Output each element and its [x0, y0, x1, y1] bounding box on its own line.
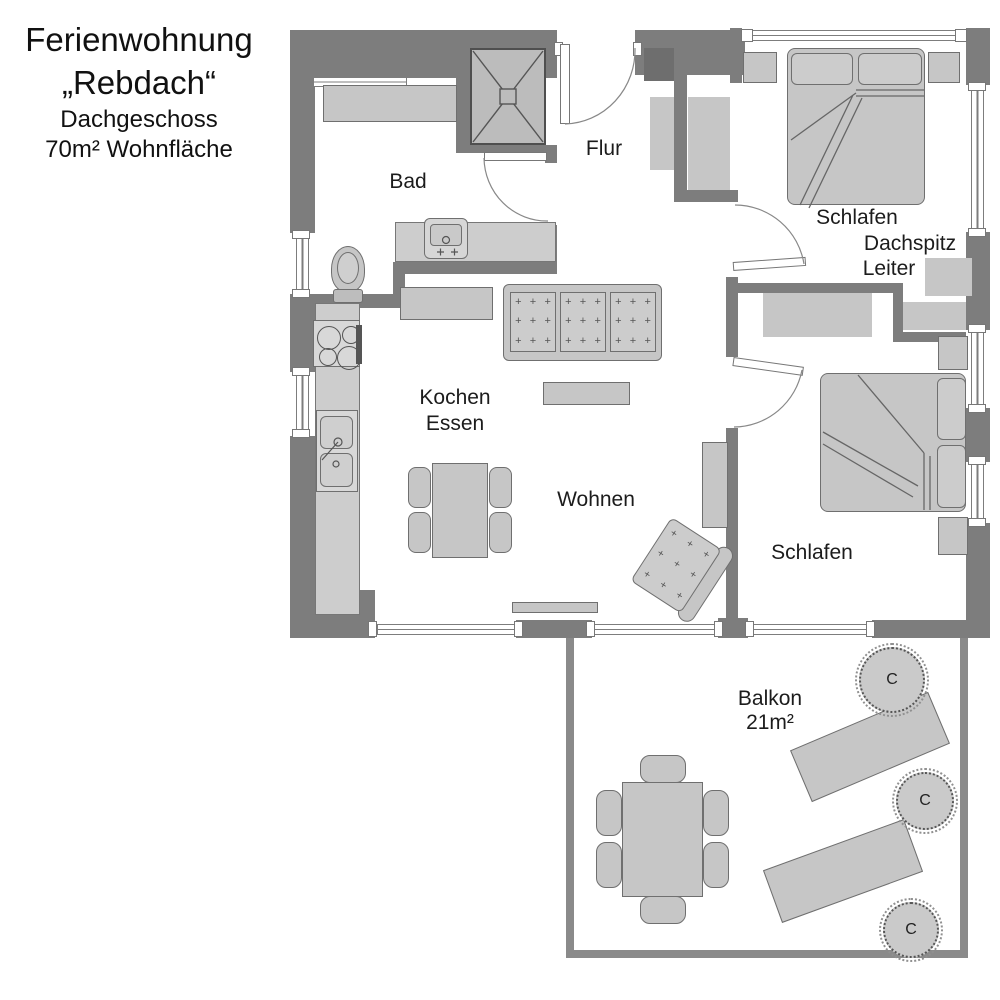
wall-bottom-block-a: [516, 620, 592, 638]
balcony-wall-right: [960, 638, 968, 958]
floor-plan: Ferienwohnung „Rebdach“ Dachgeschoss 70m…: [0, 0, 1000, 1000]
balcony-chair: [703, 790, 729, 836]
coffee-table: [543, 382, 630, 405]
balcony-chair: [640, 896, 686, 924]
bedroom2-door-arc: [734, 370, 802, 427]
dining-chair: [408, 467, 431, 508]
bath-door-arc: [484, 158, 548, 221]
window-cap: [292, 429, 310, 438]
window-cap: [866, 621, 875, 637]
entrance-door-leaf: [560, 44, 570, 124]
window-south-1: [377, 624, 517, 635]
wall-east-4: [966, 523, 990, 638]
title-line-4: 70m² Wohnfläche: [5, 135, 273, 165]
wall-shower-west: [456, 30, 470, 153]
wall-flur-strip: [674, 75, 687, 192]
title-line-1: Ferienwohnung: [5, 18, 273, 62]
bath-door-leaf: [484, 152, 547, 161]
pillow: [937, 445, 966, 508]
dining-chair: [489, 467, 512, 508]
bedroom1-door-arc: [735, 205, 804, 264]
niche-shelf: [903, 302, 966, 330]
toilet-bowl: [337, 252, 359, 284]
wall-west-mid: [290, 297, 315, 372]
balcony-chair: [640, 755, 686, 783]
door-jamb-cap: [633, 42, 642, 56]
kitchen-sink-basin: [320, 416, 353, 449]
kitchen-sink-basin: [320, 453, 353, 487]
window-cap: [514, 621, 523, 637]
window-south-3: [749, 624, 873, 635]
window-cap: [741, 29, 753, 42]
room-label-balkon: Balkon: [738, 687, 802, 711]
wall-bedrooms-h1: [738, 283, 903, 293]
title-line-2: „Rebdach“: [5, 62, 273, 104]
window-cap: [368, 621, 377, 637]
nightstand: [928, 52, 960, 83]
window-cap: [968, 404, 986, 413]
wall-east-1: [966, 28, 990, 85]
living-sideboard: [702, 442, 728, 528]
wall-west-lower: [290, 436, 315, 590]
window-east-1: [971, 85, 984, 232]
window-cap: [714, 621, 723, 637]
room-label-wohnen: Wohnen: [557, 488, 635, 512]
oven-handle: [356, 325, 362, 364]
nightstand: [743, 52, 777, 83]
window-east-2: [971, 330, 984, 408]
window-cap: [968, 324, 986, 333]
window-cap: [745, 621, 754, 637]
window-cap: [968, 456, 986, 465]
window-south-2: [594, 624, 719, 635]
window-cap: [968, 518, 986, 527]
plan-title: Ferienwohnung „Rebdach“ Dachgeschoss 70m…: [5, 18, 273, 165]
pillow: [937, 378, 966, 440]
dining-chair: [489, 512, 512, 553]
wall-divider-mid: [726, 277, 738, 357]
room-label-schlafen-2: Schlafen: [771, 541, 853, 565]
vanity-counter: [395, 222, 556, 262]
dresser: [763, 293, 872, 337]
kitchen-sideboard: [400, 287, 493, 320]
stove-burner: [319, 348, 337, 366]
balcony-wall-left: [566, 638, 574, 958]
sofa-cushion: +++++++++: [511, 293, 555, 351]
wall-east-3: [966, 408, 990, 462]
shower: [470, 48, 546, 145]
window-cap: [586, 621, 595, 637]
label-balkon-size: 21m²: [746, 711, 794, 735]
sofa-cushion: +++++++++: [611, 293, 655, 351]
stove-burner: [317, 326, 341, 350]
room-label-essen: Essen: [426, 412, 484, 436]
wall-west-upper: [290, 78, 315, 233]
bath-cabinet: [323, 85, 457, 122]
plant-label: C: [919, 792, 931, 810]
plant: C: [859, 647, 925, 713]
window-west-1: [296, 238, 309, 294]
entrance-door-arc: [565, 48, 635, 124]
window-cap: [968, 82, 986, 91]
balcony-chair: [703, 842, 729, 888]
window-west-2: [296, 374, 309, 434]
bedroom2-door-leaf: [732, 357, 804, 376]
attic-ladder: [925, 258, 972, 296]
nightstand: [938, 517, 968, 555]
balcony-table: [622, 782, 703, 897]
window-east-3: [971, 462, 984, 523]
window-cap: [292, 367, 310, 376]
label-dachspitz: Dachspitz: [864, 232, 956, 256]
window-cap: [955, 29, 967, 42]
chimney-duct: [644, 48, 674, 81]
bedroom1-door-leaf: [733, 257, 806, 271]
pillow: [791, 53, 853, 85]
wall-flur-south: [674, 190, 738, 202]
window-cap: [292, 230, 310, 239]
toilet-tank: [333, 289, 363, 303]
title-line-3: Dachgeschoss: [5, 104, 273, 135]
window-cap: [968, 228, 986, 237]
wall-bad-south: [395, 262, 557, 274]
bedroom1-wardrobe: [688, 97, 730, 190]
label-leiter: Leiter: [863, 257, 916, 281]
window-cap: [292, 289, 310, 298]
room-label-kochen: Kochen: [419, 386, 490, 410]
room-label-schlafen-1: Schlafen: [816, 206, 898, 230]
room-label-flur: Flur: [586, 137, 622, 161]
bathroom-sink-basin: [430, 224, 462, 246]
plant: C: [883, 902, 939, 958]
armchair: +++++++++: [628, 513, 737, 625]
balcony-chair: [596, 842, 622, 888]
plant: C: [896, 772, 954, 830]
room-label-bad: Bad: [389, 170, 426, 194]
plant-label: C: [905, 921, 917, 939]
pillow: [858, 53, 922, 85]
plant-label: C: [886, 671, 898, 689]
window-north-bedroom: [744, 30, 964, 41]
dining-chair: [408, 512, 431, 553]
nightstand: [938, 336, 968, 370]
dining-table: [432, 463, 488, 558]
tv-lowboard: [512, 602, 598, 613]
balcony-chair: [596, 790, 622, 836]
flur-wardrobe: [650, 97, 674, 170]
sofa-cushion: +++++++++: [561, 293, 605, 351]
